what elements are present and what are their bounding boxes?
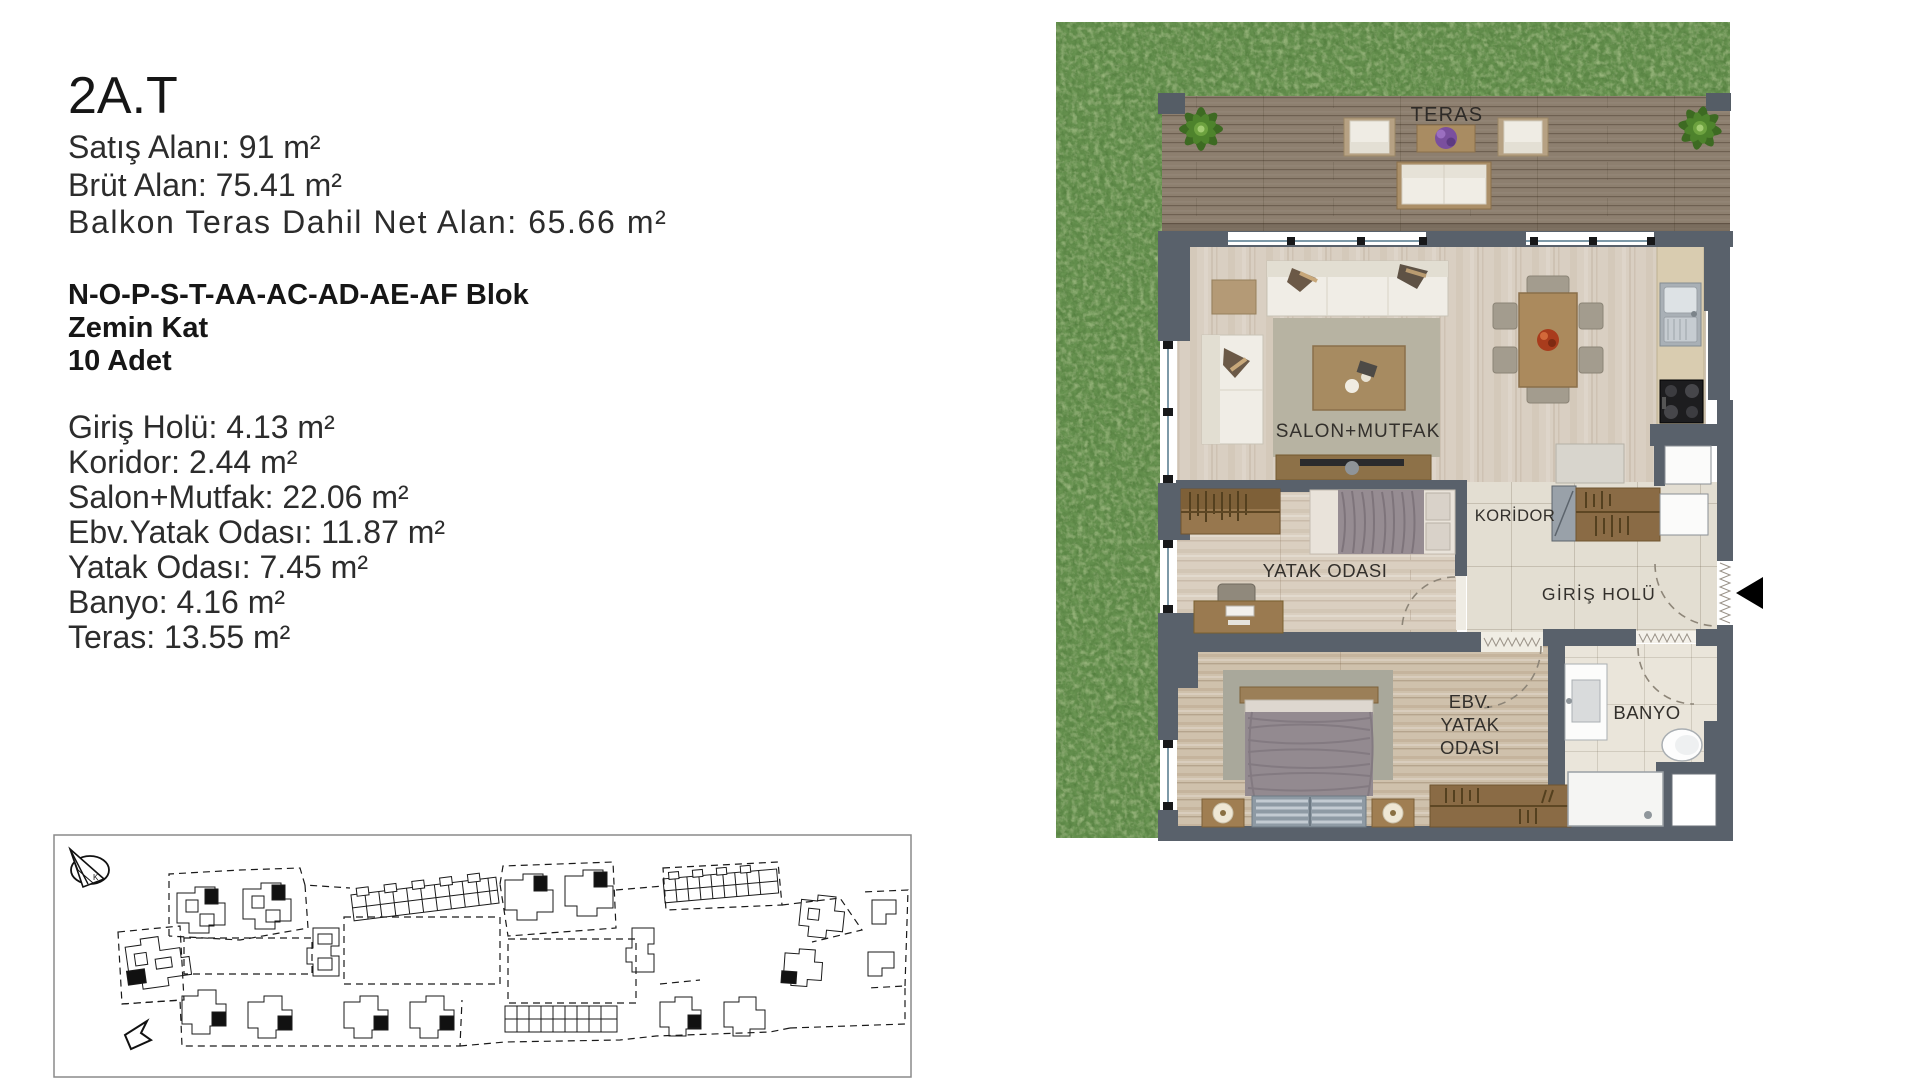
svg-text:YATAK: YATAK bbox=[1440, 714, 1499, 735]
svg-text:BANYO: BANYO bbox=[1613, 702, 1680, 723]
svg-text:Ebv.Yatak Odası: 11.87 m²: Ebv.Yatak Odası: 11.87 m² bbox=[68, 514, 445, 550]
svg-text:SALON+MUTFAK: SALON+MUTFAK bbox=[1276, 421, 1441, 442]
svg-text:Brüt Alan: 75.41 m²: Brüt Alan: 75.41 m² bbox=[68, 167, 342, 203]
svg-text:N-O-P-S-T-AA-AC-AD-AE-AF Blok: N-O-P-S-T-AA-AC-AD-AE-AF Blok bbox=[68, 279, 530, 311]
svg-text:Balkon Teras Dahil Net Alan: 6: Balkon Teras Dahil Net Alan: 65.66 m² bbox=[68, 204, 667, 240]
svg-text:KORİDOR: KORİDOR bbox=[1475, 506, 1556, 525]
svg-text:Giriş Holü: 4.13 m²: Giriş Holü: 4.13 m² bbox=[68, 409, 335, 445]
svg-text:Koridor: 2.44 m²: Koridor: 2.44 m² bbox=[68, 444, 298, 480]
svg-text:Teras: 13.55 m²: Teras: 13.55 m² bbox=[68, 619, 291, 655]
svg-text:EBV.: EBV. bbox=[1449, 691, 1491, 712]
svg-text:TERAS: TERAS bbox=[1411, 104, 1484, 126]
svg-text:Yatak Odası: 7.45 m²: Yatak Odası: 7.45 m² bbox=[68, 549, 368, 585]
svg-text:Satış Alanı: 91 m²: Satış Alanı: 91 m² bbox=[68, 129, 321, 165]
svg-text:YATAK ODASI: YATAK ODASI bbox=[1263, 560, 1388, 581]
svg-text:ODASI: ODASI bbox=[1440, 737, 1500, 758]
svg-text:K: K bbox=[93, 873, 99, 882]
svg-text:Zemin Kat: Zemin Kat bbox=[68, 312, 209, 344]
svg-text:Banyo: 4.16 m²: Banyo: 4.16 m² bbox=[68, 584, 285, 620]
svg-text:2A.T: 2A.T bbox=[68, 67, 178, 125]
svg-text:Salon+Mutfak: 22.06 m²: Salon+Mutfak: 22.06 m² bbox=[68, 479, 409, 515]
svg-text:10 Adet: 10 Adet bbox=[68, 345, 172, 377]
svg-text:GİRİŞ HOLÜ: GİRİŞ HOLÜ bbox=[1542, 584, 1656, 604]
